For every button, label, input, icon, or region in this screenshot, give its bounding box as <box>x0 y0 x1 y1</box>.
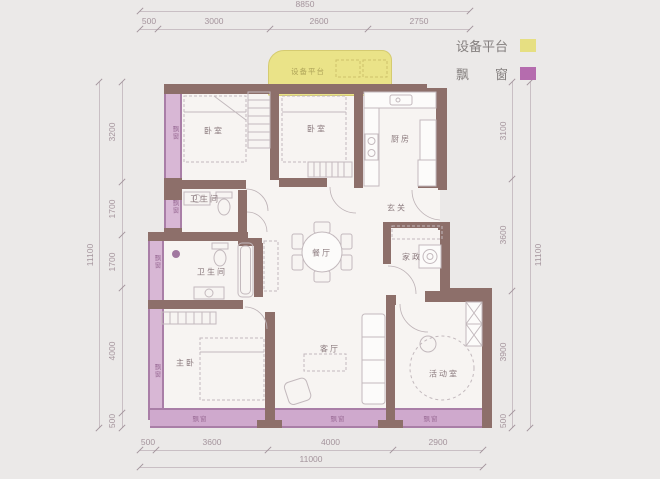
legend-item-bay-window: 飘 窗 <box>456 64 536 83</box>
dim-tick <box>118 424 125 431</box>
dim-left-seg-3: 4000 <box>107 341 117 360</box>
dim-bottom-overall: 11000 <box>299 454 322 464</box>
bay-window-strip <box>148 240 164 308</box>
dim-left-seg-1: 1700 <box>107 199 117 218</box>
wall <box>279 178 327 187</box>
room-label-dining-room: 餐厅 <box>312 248 332 259</box>
room-label-bedroom-1: 卧室 <box>204 126 224 137</box>
dim-top-seg-0: 500 <box>142 16 156 26</box>
room-label-kitchen: 厨房 <box>391 134 411 145</box>
room-label-master-bedroom: 主卧 <box>176 358 196 369</box>
dim-line <box>140 11 470 12</box>
legend-swatch-bay-window <box>520 67 536 80</box>
dim-right-overall: 11100 <box>533 244 543 266</box>
legend-label-bay-window: 飘 窗 <box>456 64 512 83</box>
dim-bottom-seg-2: 4000 <box>321 437 340 447</box>
wall <box>482 295 492 428</box>
dim-line <box>122 82 123 428</box>
wall <box>440 226 450 295</box>
wall <box>164 84 427 94</box>
wall <box>438 222 450 230</box>
bay-window-label-4: 飘窗 <box>193 413 208 423</box>
legend-item-equipment-platform: 设备平台 <box>456 36 536 55</box>
bay-window-label-1: 飘窗 <box>169 200 179 215</box>
floor-area <box>178 90 440 240</box>
dim-top-seg-2: 2600 <box>310 16 329 26</box>
dim-line <box>140 29 470 30</box>
wall <box>148 232 248 241</box>
dim-tick <box>479 463 486 470</box>
legend: 设备平台 飘 窗 <box>456 36 536 92</box>
dim-bottom-seg-1: 3600 <box>203 437 222 447</box>
bay-window-label-3: 飘窗 <box>151 364 161 379</box>
dim-line <box>512 82 513 428</box>
wall <box>386 295 396 305</box>
room-label-bathroom-2: 卫生间 <box>197 267 227 278</box>
dim-top-seg-3: 2750 <box>410 16 429 26</box>
dim-bottom-seg-0: 500 <box>141 437 155 447</box>
floor-plan-canvas: 设备平台 <box>0 0 660 479</box>
wall <box>354 88 363 188</box>
dim-top-overall: 8850 <box>296 0 315 9</box>
room-label-activity-room: 活动室 <box>429 369 459 380</box>
dim-tick <box>479 446 486 453</box>
dim-tick <box>95 424 102 431</box>
wall <box>270 88 279 180</box>
dim-right-seg-2: 3900 <box>498 343 508 362</box>
bay-window-label-2: 飘窗 <box>151 255 161 270</box>
wall <box>438 178 447 190</box>
room-label-living-room: 客厅 <box>320 344 340 355</box>
bay-window-label-0: 飘窗 <box>169 126 179 141</box>
floor-area <box>158 235 440 410</box>
wall <box>254 243 263 297</box>
wall <box>257 420 282 428</box>
dim-left-seg-2: 1700 <box>107 252 117 271</box>
dim-tick <box>466 7 473 14</box>
wall <box>164 180 246 189</box>
equipment-platform-label: 设备平台 <box>291 66 325 77</box>
dim-tick <box>508 424 515 431</box>
wall <box>386 300 395 428</box>
room-label-bathroom-1: 卫生间 <box>190 194 220 205</box>
wall <box>378 420 403 428</box>
dim-bottom-seg-3: 2900 <box>429 437 448 447</box>
room-label-laundry: 家政 <box>402 252 422 263</box>
wall <box>265 312 275 428</box>
dim-line <box>140 450 483 451</box>
wall <box>383 222 391 264</box>
bay-window-label-5: 飘窗 <box>331 413 346 423</box>
dim-right-seg-0: 3100 <box>498 121 508 140</box>
room-label-foyer: 玄关 <box>387 203 407 214</box>
room-label-bedroom-2: 卧室 <box>307 124 327 135</box>
dim-line <box>99 82 100 428</box>
dim-tick <box>466 25 473 32</box>
dim-line <box>140 467 483 468</box>
floor-area <box>438 298 484 410</box>
wall <box>238 190 247 242</box>
dim-left-seg-0: 3200 <box>107 123 117 142</box>
legend-swatch-equipment-platform <box>520 39 536 52</box>
wall <box>148 300 243 309</box>
dim-right-seg-3: 500 <box>498 413 508 427</box>
dim-right-seg-1: 3600 <box>498 226 508 245</box>
dim-tick <box>526 424 533 431</box>
legend-label-equipment-platform: 设备平台 <box>456 36 512 55</box>
wall <box>436 100 447 180</box>
dim-top-seg-1: 3000 <box>205 16 224 26</box>
dim-left-overall: 11100 <box>85 244 95 266</box>
bay-window-label-6: 飘窗 <box>424 413 439 423</box>
dim-line <box>530 82 531 428</box>
dim-left-seg-4: 500 <box>107 413 117 427</box>
